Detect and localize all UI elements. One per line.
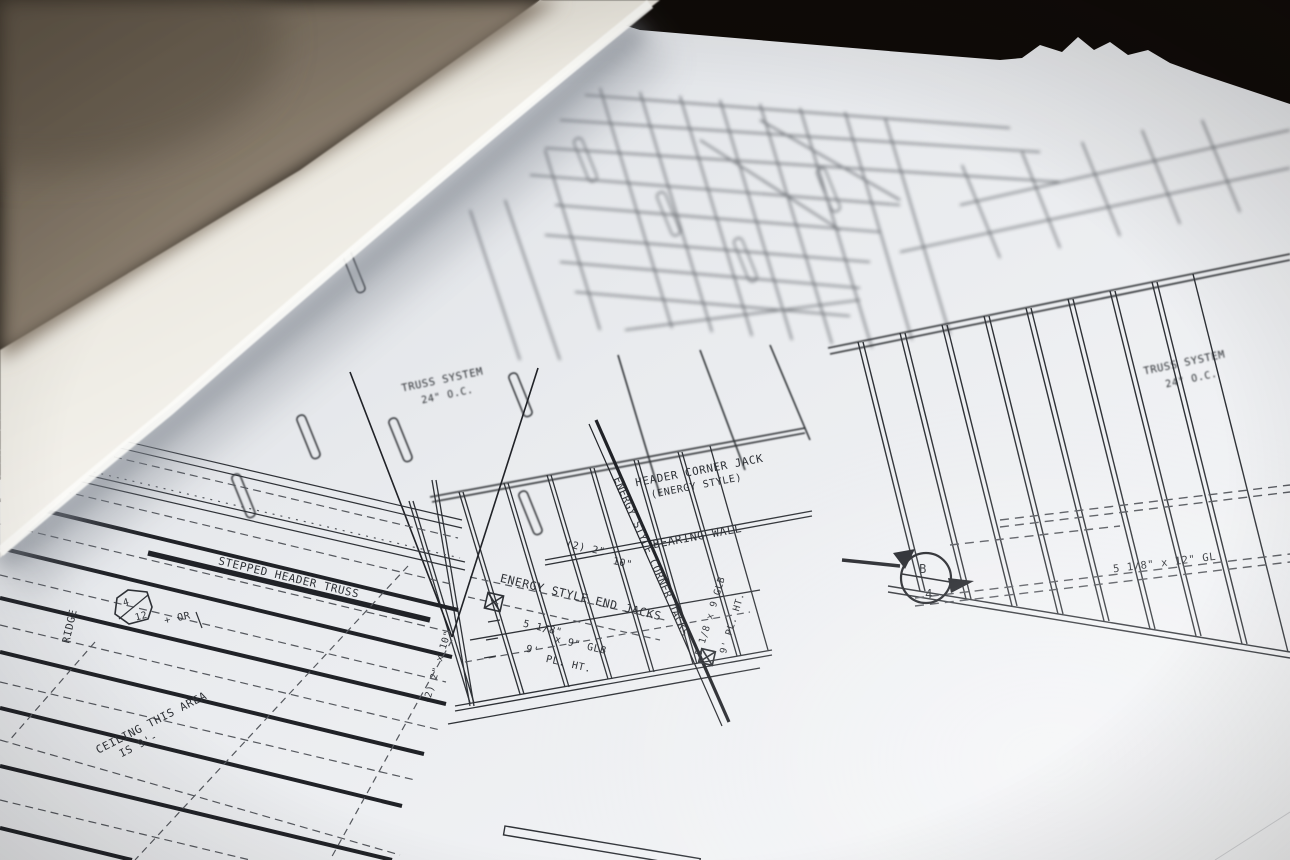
blueprint-photo: TRUSS SYSTEM 24" O.C. TRUSS SYSTEM 24" O… <box>0 0 1290 860</box>
vignette <box>0 0 1290 860</box>
lighting <box>0 0 1290 860</box>
blueprint-photo-scene: TRUSS SYSTEM 24" O.C. TRUSS SYSTEM 24" O… <box>0 0 1290 860</box>
